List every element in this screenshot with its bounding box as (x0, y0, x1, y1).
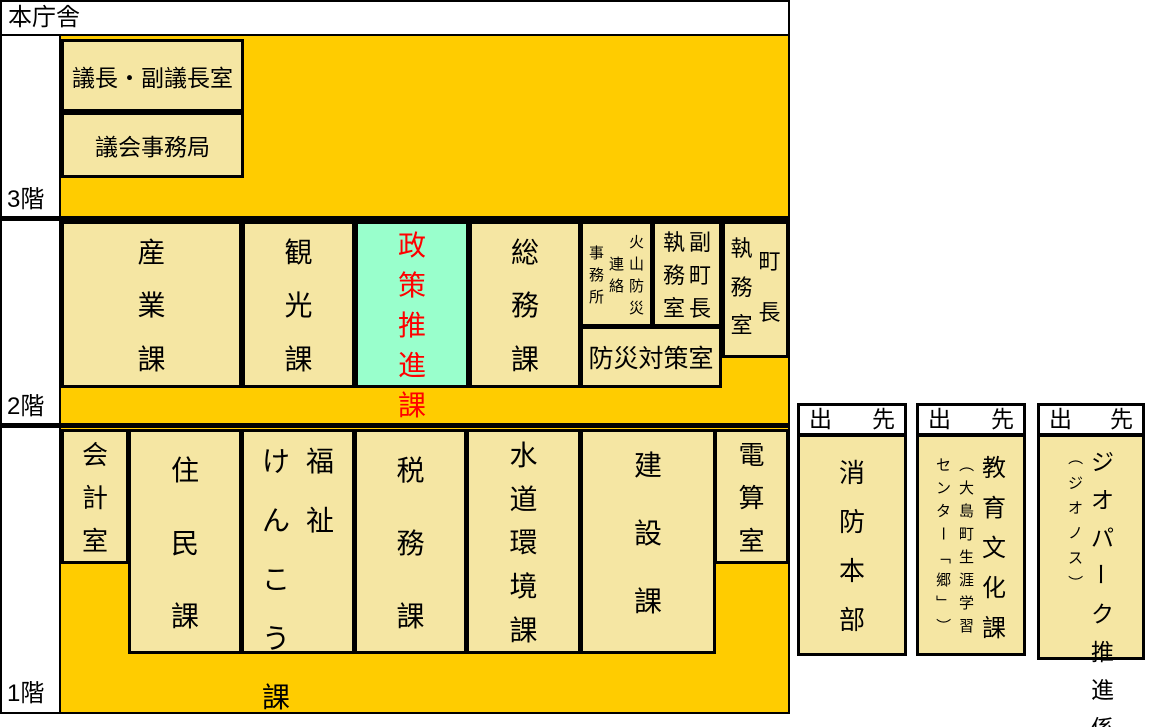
room-label: 福祉けんこう課 (244, 432, 352, 651)
room-welfare-health-division: 福祉けんこう課 (241, 429, 355, 654)
room-label: 防災対策室 (583, 329, 719, 385)
room-label: 会計室 (64, 432, 126, 561)
room-water-environment-division: 水道環境課 (466, 429, 581, 654)
branch-office-fire-hq: 出先 消防本部 (797, 403, 907, 656)
building-title: 本庁舎 (2, 2, 788, 36)
room-construction-division: 建設課 (580, 429, 716, 654)
room-accounting: 会計室 (61, 429, 129, 564)
room-industry-division: 産業課 (61, 221, 242, 388)
room-label: 火山防災連絡事務所 (583, 224, 650, 324)
room-tax-division: 税務課 (354, 429, 467, 654)
room-residents-division: 住民課 (128, 429, 242, 654)
floor-label-3f: 3階 (7, 185, 44, 215)
branch-label: 消防本部 (800, 437, 904, 653)
room-label: 観光課 (245, 224, 352, 385)
floor-label-1f: 1階 (7, 679, 44, 709)
room-label: 水道環境課 (469, 432, 578, 651)
room-label: 議長・副議長室 (64, 42, 241, 109)
room-label: 議会事務局 (64, 115, 241, 175)
room-label: 副町長執務室 (655, 224, 719, 324)
room-general-affairs-division: 総務課 (469, 221, 581, 388)
branch-label: ジオパーク推進係（ジオノス） (1040, 437, 1142, 657)
room-label: 総務課 (472, 224, 578, 385)
branch-label: 教育文化課（大島町生涯学習センター「郷」） (919, 437, 1023, 653)
room-chairman-vice-chairman: 議長・副議長室 (61, 39, 244, 112)
room-disaster-countermeasures: 防災対策室 (580, 326, 722, 388)
main-building-panel: 本庁舎 3階 2階 1階 議長・副議長室 議会事務局 産業課 観光課 政策推進課… (0, 0, 790, 714)
room-assembly-secretariat: 議会事務局 (61, 112, 244, 178)
branch-header: 出先 (1040, 406, 1142, 437)
room-label: 産業課 (64, 224, 239, 385)
room-label: 電算室 (717, 432, 786, 561)
room-mayor-office: 町長執務室 (722, 221, 789, 358)
floor-label-2f: 2階 (7, 392, 44, 422)
branch-office-education-culture: 出先 教育文化課（大島町生涯学習センター「郷」） (916, 403, 1026, 656)
room-volcano-disaster-liaison-office: 火山防災連絡事務所 (580, 221, 653, 327)
room-label: 税務課 (357, 432, 464, 651)
room-policy-promotion-division-highlighted: 政策推進課 (355, 221, 469, 388)
room-label: 建設課 (583, 432, 713, 651)
room-vice-mayor-office: 副町長執務室 (652, 221, 722, 327)
branch-office-geopark-promotion: 出先 ジオパーク推進係（ジオノス） (1037, 403, 1145, 660)
floor-divider-2-1 (2, 423, 788, 428)
branch-header: 出先 (919, 406, 1023, 437)
room-computer-room: 電算室 (714, 429, 789, 564)
room-tourism-division: 観光課 (242, 221, 355, 388)
branch-header: 出先 (800, 406, 904, 437)
room-label: 政策推進課 (358, 224, 466, 385)
room-label: 住民課 (131, 432, 239, 651)
floor-map-canvas: 本庁舎 3階 2階 1階 議長・副議長室 議会事務局 産業課 観光課 政策推進課… (0, 0, 1163, 727)
room-label: 町長執務室 (725, 224, 786, 355)
